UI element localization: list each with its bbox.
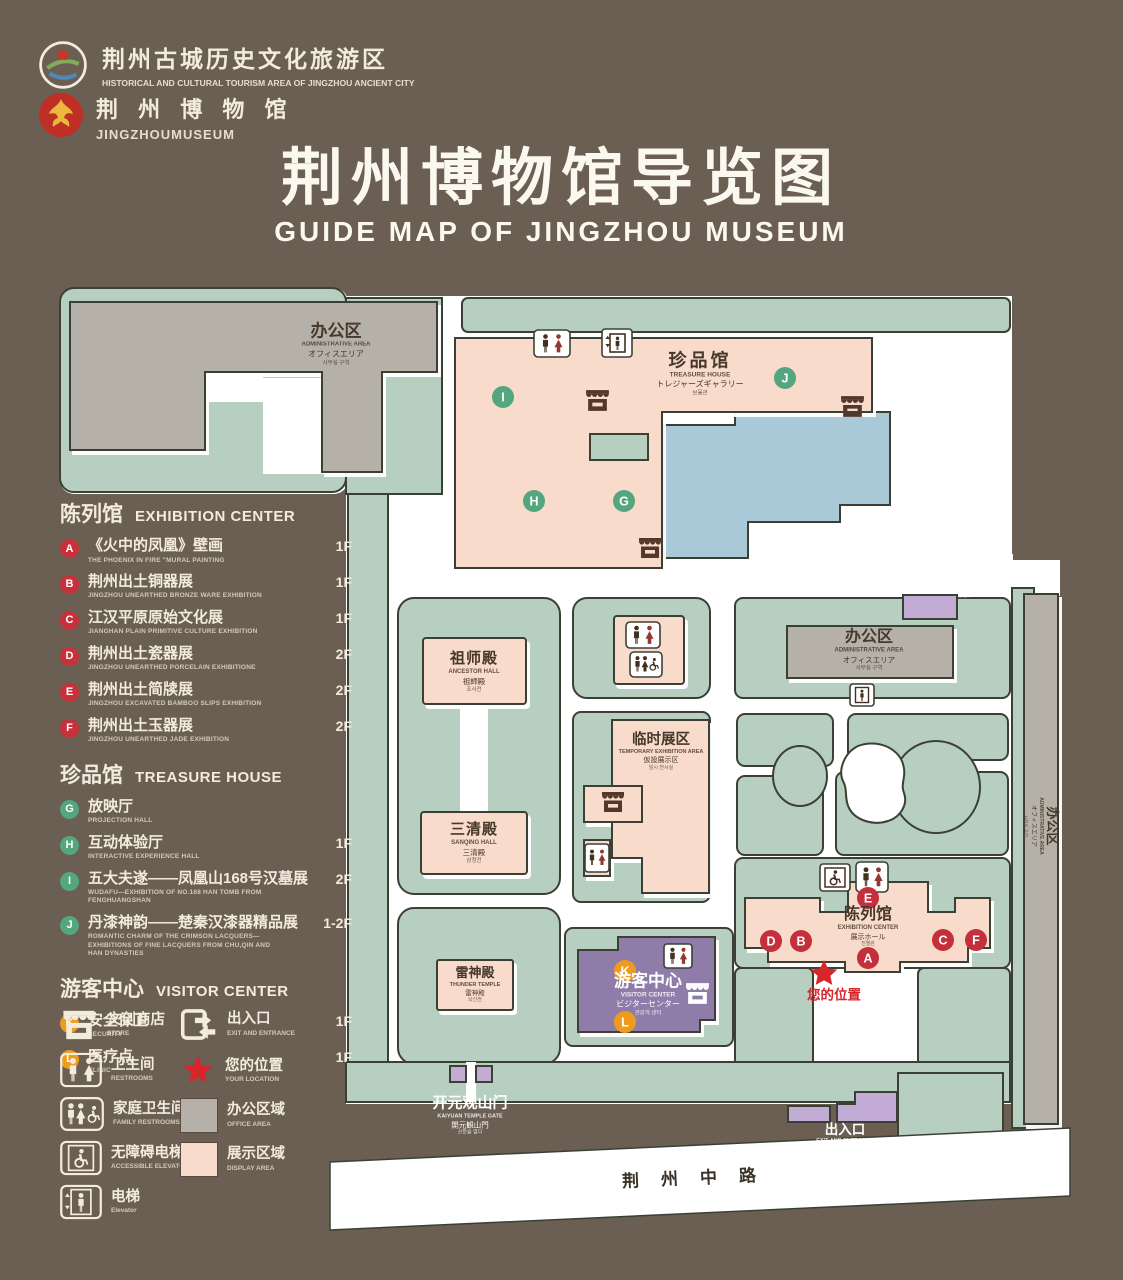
section-title-zh: 陈列馆 xyxy=(60,498,123,528)
sanqing-hall-building xyxy=(421,812,527,874)
marker-badge-h: H xyxy=(60,836,79,855)
marker-badge-i: I xyxy=(60,872,79,891)
marker-badge-g: G xyxy=(60,800,79,819)
legend-item-j: J 丹漆神韵——楚秦汉漆器精品展ROMANTIC CHARM OF THE CR… xyxy=(60,915,352,959)
label-exit-northeast: 出入口 EXIT AND ENTRANCE 出入口 출입구 xyxy=(936,561,994,599)
legend-item-a: A 《火中的凤凰》壁画THE PHOENIX IN FIRE "MURAL PA… xyxy=(60,538,352,565)
restroom-icon xyxy=(60,1052,102,1088)
label-office-east: 办公区 ADMINISTRATIVE AREA オフィスエリア 사무실 구역 xyxy=(835,628,904,671)
legend-item-e: E 荆州出土简牍展JINGZHOU EXCAVATED BAMBOO SLIPS… xyxy=(60,682,352,709)
temporary-store-building xyxy=(584,786,642,822)
museum-brand: 荆 州 博 物 馆 JINGZHOUMUSEUM xyxy=(38,92,293,142)
svg-text:J: J xyxy=(782,372,789,386)
page-title-en: GUIDE MAP OF JINGZHOU MUSEUM xyxy=(274,216,848,248)
accessible-elevator-icon xyxy=(60,1140,102,1176)
gate-northeast xyxy=(903,595,957,619)
marker-L: L xyxy=(614,1011,636,1033)
marker-badge-e: E xyxy=(60,683,79,702)
svg-text:G: G xyxy=(619,495,629,509)
accessible-elevator-icon xyxy=(820,864,850,891)
legend-item-g: G 放映厅PROJECTION HALL xyxy=(60,799,352,826)
legend-item-i: I 五大夫遂——凤凰山168号汉墓展WUDAFU—EXHIBITION OF N… xyxy=(60,871,352,906)
legend-item-h: H 互动体验厅INTERACTIVE EXPERIENCE HALL 1F xyxy=(60,835,352,862)
office-building-northwest xyxy=(70,302,437,472)
visitor-center-building xyxy=(578,937,715,1032)
svg-text:D: D xyxy=(766,935,775,949)
floor-label: 2F xyxy=(330,682,352,698)
svg-text:F: F xyxy=(972,934,980,948)
store-icon xyxy=(841,396,864,417)
marker-badge-b: B xyxy=(60,575,79,594)
family-restroom-icon xyxy=(630,652,662,677)
marker-badge-d: D xyxy=(60,647,79,666)
marker-badge-a: A xyxy=(60,539,79,558)
svg-text:K: K xyxy=(620,965,629,979)
legend-item-c: C 江汉平原原始文化展JIANGHAN PLAIN PRIMITIVE CULT… xyxy=(60,610,352,637)
floor-label: 1F xyxy=(330,610,352,626)
ancestor-hall-building xyxy=(423,638,526,704)
legend-item-f: F 荆州出土玉器展JINGZHOU UNEARTHED JADE EXHIBIT… xyxy=(60,718,352,745)
marker-D: D xyxy=(760,930,782,952)
store-icon xyxy=(586,390,609,411)
family-restroom-icon xyxy=(60,1096,104,1132)
marker-I: I xyxy=(492,386,514,408)
svg-text:B: B xyxy=(796,935,805,949)
floor-label: 2F xyxy=(330,871,352,887)
marker-F: F xyxy=(965,929,987,951)
key-office-area: 办公区域OFFICE AREA xyxy=(180,1098,285,1133)
office-building-east xyxy=(787,626,953,678)
label-ancestor-hall: 祖师殿 ANCESTOR HALL 祖師殿 조사전 xyxy=(448,651,499,693)
gate-structures xyxy=(450,595,957,1122)
svg-text:L: L xyxy=(621,1016,629,1030)
floor-label: 1F xyxy=(330,835,352,851)
elevator-icon xyxy=(60,1184,102,1220)
restroom-icon xyxy=(626,622,660,648)
marker-K: K xyxy=(614,960,636,982)
museum-title: 荆 州 博 物 馆 JINGZHOUMUSEUM xyxy=(96,92,293,142)
legend-section-visitor-center: 游客中心 VISITOR CENTER xyxy=(60,973,352,1003)
tourism-area-title: 荆州古城历史文化旅游区 HISTORICAL AND CULTURAL TOUR… xyxy=(102,40,415,88)
marker-G: G xyxy=(613,490,635,512)
elevator-icon xyxy=(602,329,632,357)
gate-south-right xyxy=(837,1092,897,1122)
marker-E: E xyxy=(857,887,879,909)
restroom-building-north xyxy=(614,616,684,684)
key-exit: 出入口EXIT AND ENTRANCE xyxy=(180,1008,295,1041)
key-elevator: 电梯Elevator xyxy=(60,1184,140,1220)
lake xyxy=(664,412,890,558)
label-visitor-center: 游客中心 VISITOR CENTER ビジターセンター 관광객 센터 xyxy=(614,971,682,1016)
page-title-zh: 荆州博物馆导览图 xyxy=(281,127,841,217)
marker-A: A xyxy=(857,947,879,969)
svg-text:H: H xyxy=(529,495,538,509)
section-title-en: EXHIBITION CENTER xyxy=(135,508,295,525)
label-office-right-wing: 办公区 ADMINISTRATIVE AREA オフィスエリア 사무실 구역 xyxy=(1023,797,1059,855)
marker-B: B xyxy=(790,930,812,952)
label-sanqing-hall: 三清殿 SANQING HALL 三清殿 삼청전 xyxy=(450,822,498,864)
key-restrooms: 卫生间RESTROOMS xyxy=(60,1052,155,1088)
gate-pillar-left xyxy=(450,1066,466,1082)
museum-logo-icon xyxy=(38,92,84,138)
facilities-key: 文创商店STORE 出入口EXIT AND ENTRANCE 卫生间RESTRO… xyxy=(60,1008,355,1253)
temporary-exhibition-building xyxy=(612,720,709,893)
garden-pond xyxy=(841,743,905,822)
floor-label: 1F xyxy=(330,574,352,590)
elevator-icon xyxy=(850,684,874,706)
label-your-location: 您的位置 xyxy=(807,987,861,1002)
map-markers: A B C D E F G H I J K L xyxy=(492,367,987,1033)
key-family-restrooms: 家庭卫生间FAMILY RESTROOMS xyxy=(60,1096,186,1132)
key-accessible-elevator: 无障碍电梯ACCESSIBLE ELEVATOR xyxy=(60,1140,189,1176)
tourism-area-brand: 荆州古城历史文化旅游区 HISTORICAL AND CULTURAL TOUR… xyxy=(38,40,415,90)
floor-label: 1-2F xyxy=(317,915,352,931)
key-store: 文创商店STORE xyxy=(60,1008,165,1042)
tourism-area-title-zh: 荆州古城历史文化旅游区 xyxy=(102,40,415,74)
marker-C: C xyxy=(932,929,954,951)
restroom-icon xyxy=(534,330,570,357)
key-display-area: 展示区域DISPLAY AREA xyxy=(180,1142,285,1177)
label-kaiyuan-gate: 开元观山门 KAIYUAN TEMPLE GATE 開元観山門 산문을 열다 xyxy=(432,1096,507,1137)
restroom-icon xyxy=(664,944,692,968)
label-exhibition-center: 陈列馆 EXHIBITION CENTER 展示ホール 진열관 xyxy=(838,906,899,948)
tourism-area-title-en: HISTORICAL AND CULTURAL TOURISM AREA OF … xyxy=(102,78,415,88)
display-buildings xyxy=(421,338,990,1010)
your-location-star-icon xyxy=(811,960,837,985)
label-road: 荆州中路 xyxy=(622,1165,779,1191)
office-area-swatch xyxy=(180,1098,218,1133)
gate-pillar-right xyxy=(476,1066,492,1082)
treasure-green-patch xyxy=(590,434,648,460)
treasure-house-building xyxy=(455,338,872,568)
exit-icon xyxy=(180,1008,218,1041)
svg-text:C: C xyxy=(938,934,947,948)
gate-south-left xyxy=(788,1106,830,1122)
key-your-location: 您的位置YOUR LOCATION xyxy=(180,1054,283,1088)
label-treasure-house: 珍品馆 TREASURE HOUSE トレジャーズギャラリー 보물관 xyxy=(656,351,743,398)
marker-badge-f: F xyxy=(60,719,79,738)
display-area-swatch xyxy=(180,1142,218,1177)
label-thunder-temple: 雷神殿 THUNDER TEMPLE 雷神殿 뇌신전 xyxy=(450,966,501,1004)
tourism-area-logo-icon xyxy=(38,40,88,90)
marker-J: J xyxy=(774,367,796,389)
legend-item-b: B 荆州出土铜器展JINGZHOU UNEARTHED BRONZE WARE … xyxy=(60,574,352,601)
label-exit-south: 出入口 EXIT AND ENTRANCE 出入口 출입구 xyxy=(816,1122,874,1160)
marker-H: H xyxy=(523,490,545,512)
exit-icon xyxy=(907,572,929,591)
store-icon xyxy=(602,792,624,812)
garden xyxy=(737,714,1008,855)
restroom-icon xyxy=(585,844,609,872)
label-temporary-exhibition: 临时展区 TEMPORARY EXHIBITION AREA 仮設展示区 임시 … xyxy=(619,732,704,772)
marker-badge-j: J xyxy=(60,916,79,935)
marker-badge-c: C xyxy=(60,611,79,630)
your-location-star-icon xyxy=(180,1054,216,1088)
museum-title-zh: 荆 州 博 物 馆 xyxy=(96,92,293,124)
floor-label: 1F xyxy=(330,538,352,554)
store-icon xyxy=(60,1008,98,1042)
store-icon xyxy=(686,983,709,1004)
floor-label: 2F xyxy=(330,718,352,734)
thunder-temple-building xyxy=(437,960,513,1010)
legend-section-treasure-house: 珍品馆 TREASURE HOUSE xyxy=(60,759,352,789)
store-icon xyxy=(639,538,661,558)
guide-map-poster: 荆州古城历史文化旅游区 HISTORICAL AND CULTURAL TOUR… xyxy=(0,0,1123,1280)
floor-label: 2F xyxy=(330,646,352,662)
legend-item-d: D 荆州出土瓷器展JINGZHOU UNEARTHED PORCELAIN EX… xyxy=(60,646,352,673)
svg-text:A: A xyxy=(863,952,872,966)
svg-text:E: E xyxy=(864,892,872,906)
office-building-right-wing xyxy=(1024,594,1058,1124)
temporary-wc-building xyxy=(584,840,610,876)
label-office-northwest: 办公区 ADMINISTRATIVE AREA オフィスエリア 사무실 구역 xyxy=(302,322,371,367)
exhibition-center-building xyxy=(745,882,990,972)
museum-title-en: JINGZHOUMUSEUM xyxy=(96,127,293,142)
legend-section-exhibition-center: 陈列馆 EXHIBITION CENTER xyxy=(60,498,352,528)
svg-text:I: I xyxy=(501,391,504,405)
legend-panel: 陈列馆 EXHIBITION CENTER A 《火中的凤凰》壁画THE PHO… xyxy=(60,498,352,1085)
restroom-icon xyxy=(856,862,888,892)
road xyxy=(330,1128,1070,1230)
